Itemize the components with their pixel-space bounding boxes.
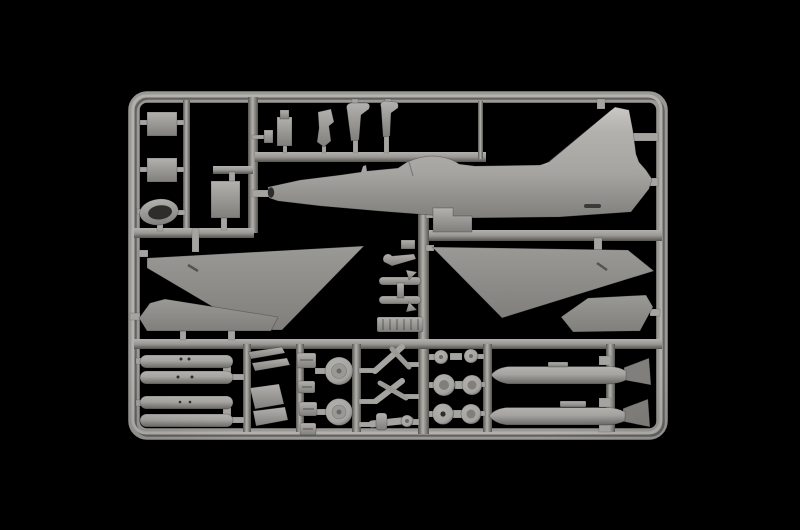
photo-canvas: [0, 0, 800, 530]
photo-vignette: [0, 0, 800, 530]
sprue-photo: [0, 0, 800, 530]
